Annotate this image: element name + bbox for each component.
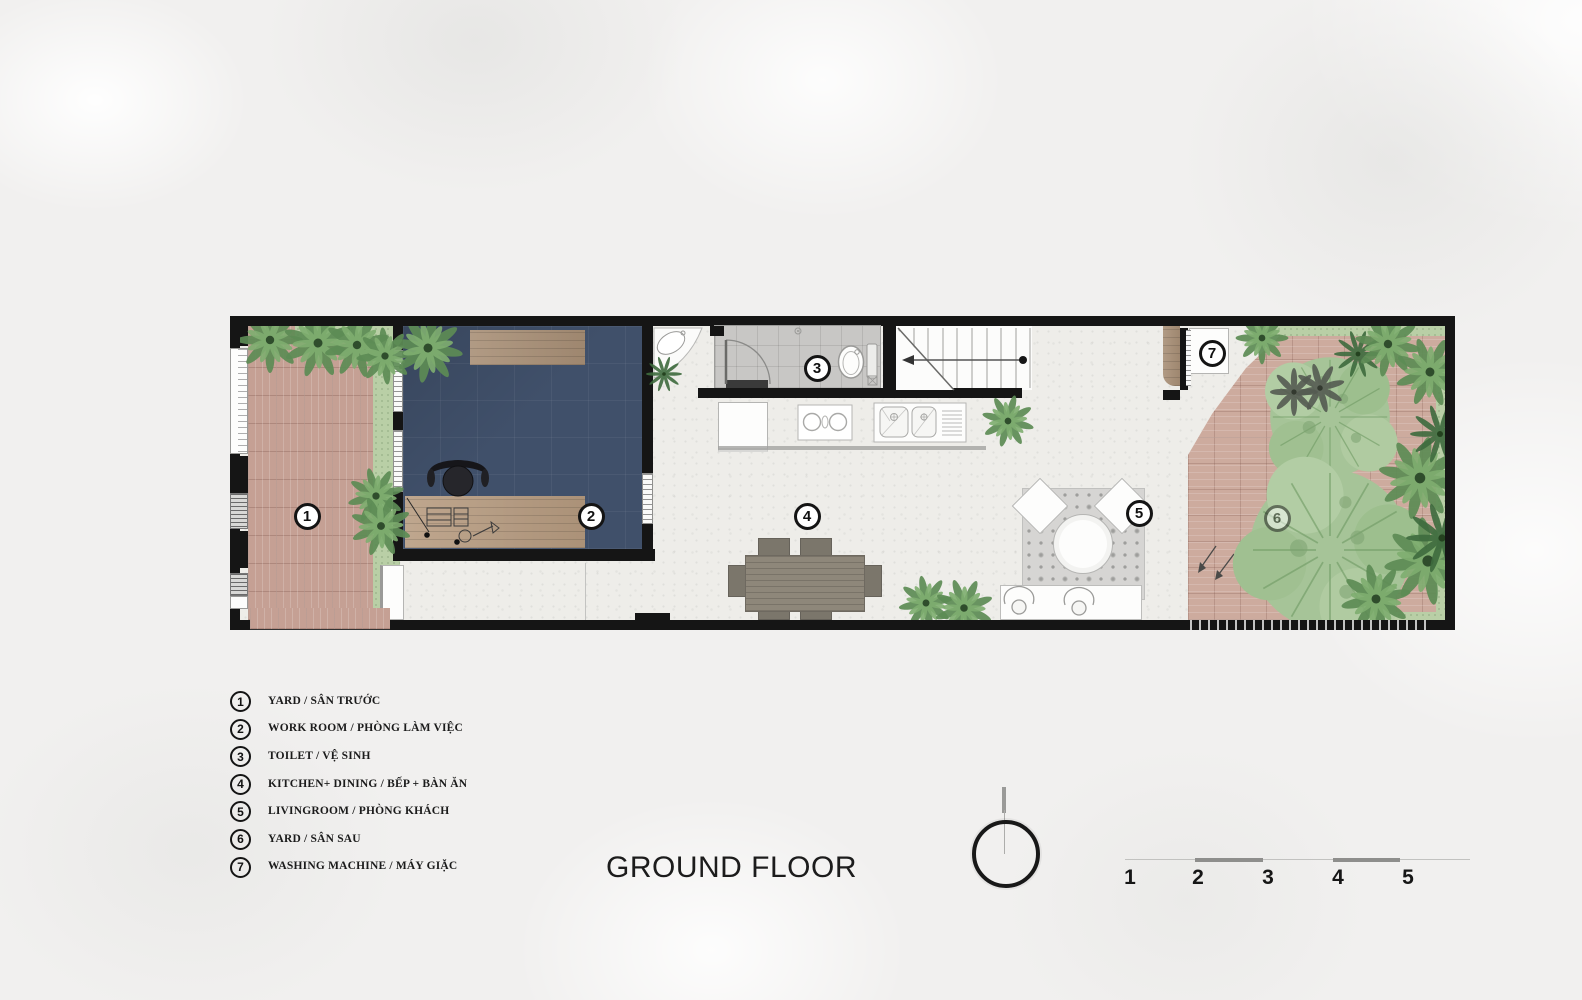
scale-label: 1 [1115,867,1145,888]
front-gate [230,348,248,454]
wall-segment [635,613,670,620]
wall-segment [393,412,403,430]
page-canvas: 1 2 3 4 5 6 7 1 YARD / SÂN TRƯỚC 2 WORK … [0,0,1582,1000]
back-yard-green-edge-bottom [1300,612,1445,620]
scale-label: 5 [1393,867,1423,888]
scale-segment [1333,858,1400,862]
front-yard-paving [248,326,373,620]
coffee-table [1053,514,1113,574]
work-desk [405,496,585,548]
legend-label: TOILET / VỆ SINH [268,751,371,763]
scale-segment [1125,859,1195,860]
front-yard-green-edge [295,326,393,340]
fridge [718,402,768,452]
room-marker-5: 5 [1126,500,1153,527]
scale-segment [1195,858,1263,862]
scale-segment [1400,859,1470,860]
stair-side-wall [883,326,896,390]
entry-step [250,608,390,630]
north-circle-icon [972,820,1040,888]
palm-plant-icon [925,569,1004,620]
floor-joint-line [585,563,586,620]
wall-segment [642,524,653,561]
room-marker-7: 7 [1199,340,1226,367]
workroom-window [393,350,403,412]
facade-louver [230,573,248,596]
wall-segment [1163,390,1180,400]
workroom-south-wall [395,549,655,561]
room-marker-4: 4 [794,503,821,530]
scale-bar: 1 2 3 4 5 [1125,853,1470,893]
legend-label: KITCHEN+ DINING / BẾP + BÀN ĂN [268,779,467,791]
facade-opening [230,596,248,609]
workroom-east-wall [642,326,653,473]
scale-label: 3 [1253,867,1283,888]
room-marker-2: 2 [578,503,605,530]
palm-plant-icon [894,571,958,620]
facade-wall-block [230,316,248,346]
room-marker-3: 3 [804,355,831,382]
legend-number-badge: 7 [230,857,251,878]
room-marker-1: 1 [294,503,321,530]
floor-plan: 1 2 3 4 5 6 7 [230,316,1455,630]
facade-wall-block [230,531,248,568]
back-yard-green-edge-right [1436,366,1445,620]
workroom-east-window [642,473,653,524]
toilet-floor [715,326,880,388]
legend-item: 1 YARD / SÂN TRƯỚC [230,691,467,712]
legend-number-badge: 6 [230,829,251,850]
legend-item: 3 TOILET / VỆ SINH [230,746,467,767]
legend-item: 7 WASHING MACHINE / MÁY GIẶC [230,857,467,878]
wall-segment [393,326,403,350]
dining-table [745,555,865,612]
legend-label: LIVINGROOM / PHÒNG KHÁCH [268,806,449,818]
legend-item: 2 WORK ROOM / PHÒNG LÀM VIỆC [230,719,467,740]
stairs-floor [896,326,1032,390]
legend-number-badge: 1 [230,691,251,712]
legend-number-badge: 3 [230,746,251,767]
kitchen-sink [874,403,966,442]
legend-label: WASHING MACHINE / MÁY GIẶC [268,861,457,873]
scale-label: 4 [1323,867,1353,888]
legend-item: 6 YARD / SÂN SAU [230,829,467,850]
back-yard-green-edge-top [1270,326,1445,336]
scale-label: 2 [1183,867,1213,888]
legend-label: WORK ROOM / PHÒNG LÀM VIỆC [268,723,463,735]
workroom-shelf [470,330,585,365]
legend-item: 5 LIVINGROOM / PHÒNG KHÁCH [230,801,467,822]
corner-basin [653,327,702,378]
kitchen-counter-edge [718,446,986,450]
palm-plant-icon [976,389,1041,454]
stove [798,405,852,440]
legend-number-badge: 5 [230,801,251,822]
legend: 1 YARD / SÂN TRƯỚC 2 WORK ROOM / PHÒNG L… [230,691,467,884]
sofa [1000,585,1142,620]
toilet-south-wall [698,388,1022,398]
scale-segment [1263,859,1333,860]
wall-segment [710,326,724,336]
dining-chair [862,565,882,597]
legend-number-badge: 4 [230,774,251,795]
washing-nook-screen [1186,330,1191,386]
facade-wall-block [230,456,248,493]
wood-screen-wall [1163,326,1180,386]
room-marker-6: 6 [1264,505,1291,532]
drain-grate [1190,620,1430,630]
legend-label: YARD / SÂN TRƯỚC [268,696,380,708]
page-title: GROUND FLOOR [606,851,857,884]
legend-item: 4 KITCHEN+ DINING / BẾP + BÀN ĂN [230,774,467,795]
legend-number-badge: 2 [230,719,251,740]
facade-louver [230,493,248,529]
legend-label: YARD / SÂN SAU [268,834,361,846]
workroom-window [393,430,403,492]
